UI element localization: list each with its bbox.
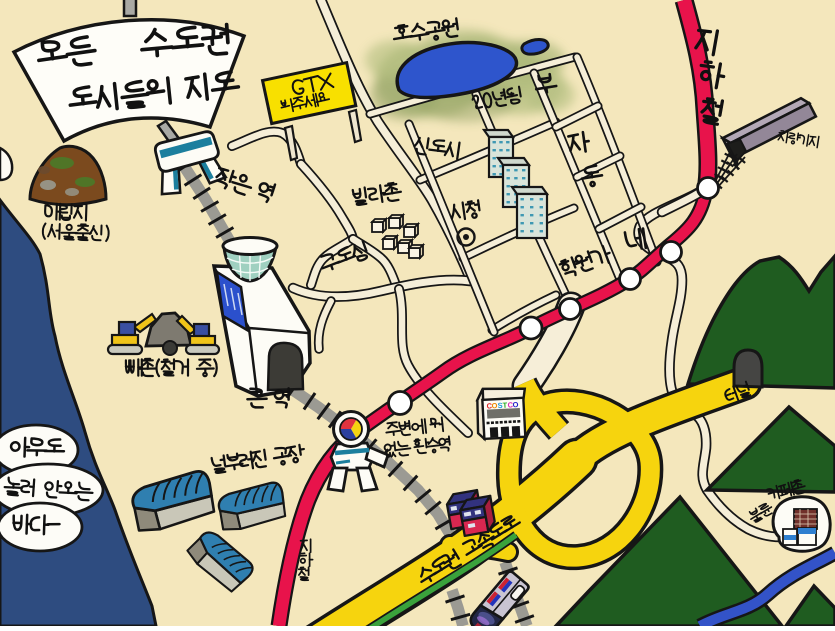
svg-text:O: O [512, 400, 518, 409]
